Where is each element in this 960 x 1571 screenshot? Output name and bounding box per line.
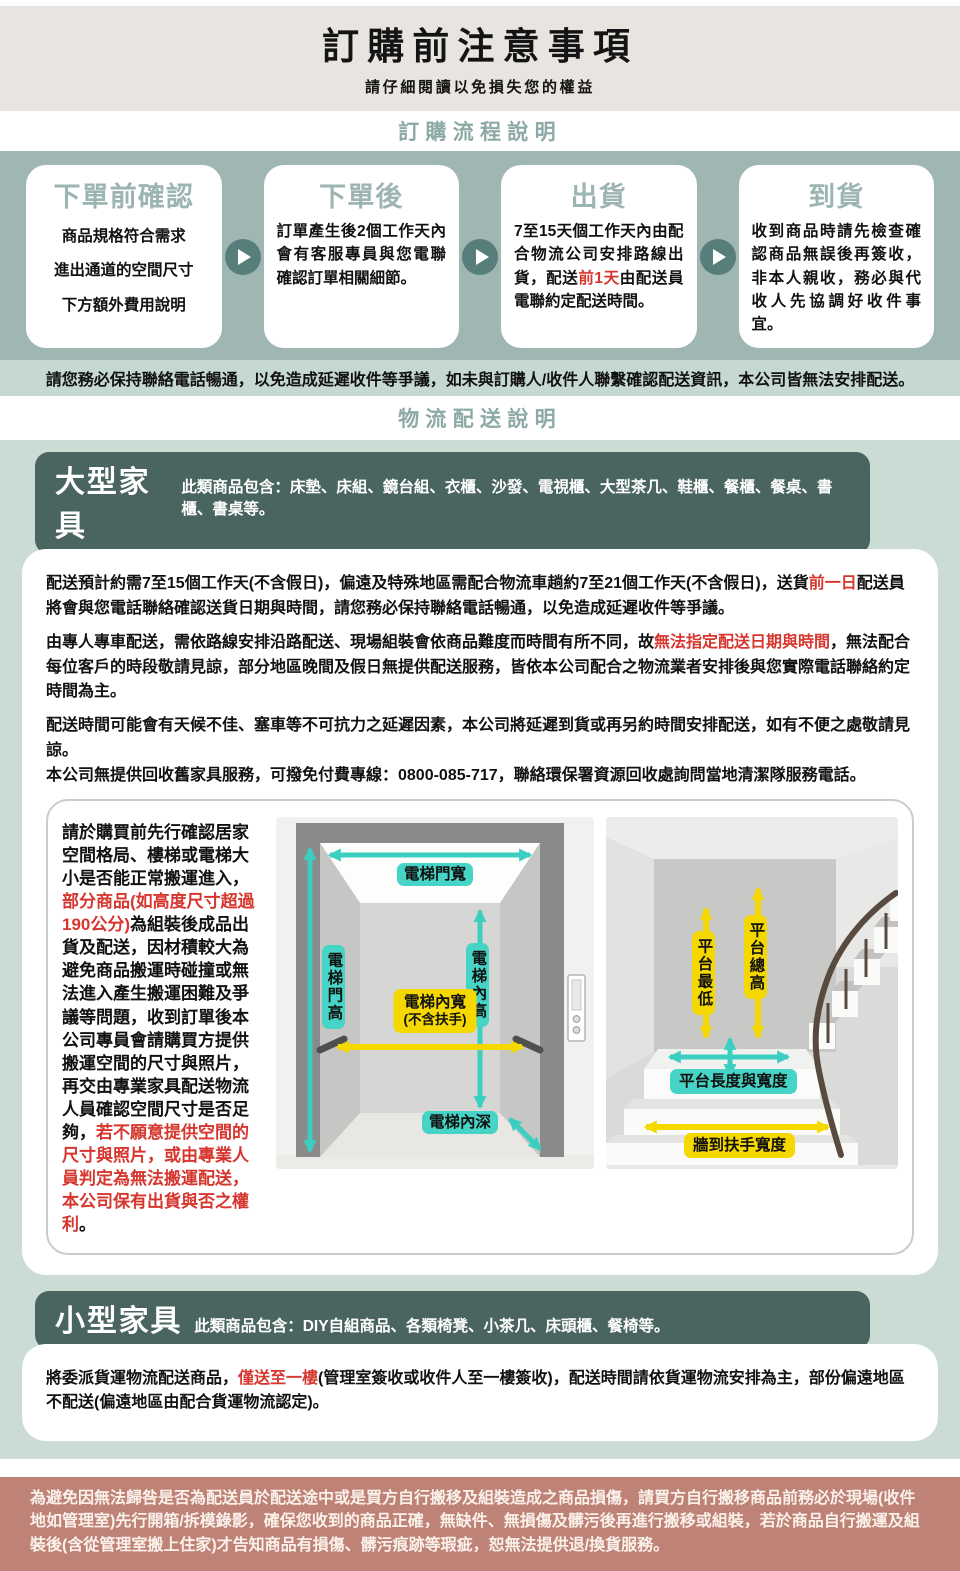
step-title: 出貨	[514, 175, 684, 214]
step-title: 下單後	[277, 175, 447, 214]
logistics-heading-band: 物流配送說明	[0, 396, 960, 440]
arrow-right-icon	[462, 239, 498, 275]
stairs-platform-min-label: 平台最低	[692, 931, 715, 1015]
large-furniture-panel: 配送預計約需7至15個工作天(不含假日)，偏遠及特殊地區需配合物流車趟約7至21…	[22, 549, 938, 1274]
elevator-diagram: 電梯門寬 電梯門高 電梯內高 電梯內寬 (不含扶手) 電梯內深	[276, 817, 594, 1169]
step-body: 7至15天個工作天內由配合物流公司安排路線出貨，配送前1天由配送員電聯約定配送時…	[514, 220, 684, 313]
process-heading: 訂購流程說明	[398, 121, 562, 144]
process-heading-band: 訂購流程說明	[0, 111, 960, 151]
step-body: 訂單產生後2個工作天內會有客服專員與您電聯確認訂單相關細節。	[277, 220, 447, 290]
logistics-section: 大型家具 此類商品包含：床墊、床組、鏡台組、衣櫃、沙發、電視櫃、大型茶几、鞋櫃、…	[0, 440, 960, 1459]
elevator-door-height-label: 電梯門高	[322, 945, 345, 1029]
small-furniture-panel: 將委派貨運物流配送商品，僅送至一樓(管理室簽收或收件人至一樓簽收)，配送時間請依…	[22, 1344, 938, 1442]
elevator-inner-width-text: 電梯內寬	[404, 994, 466, 1011]
step-title: 下單前確認	[39, 175, 209, 214]
damage-disclaimer-footer: 為避免因無法歸咎是否為配送員於配送途中或是買方自行搬移及組裝造成之商品損傷，請買…	[0, 1477, 960, 1571]
stairs-diagram: 平台最低 平台總高 平台長度與寬度 牆到扶手寬度	[606, 817, 898, 1169]
step-card-before-order: 下單前確認 商品規格符合需求進出通道的空間尺寸下方額外費用說明	[26, 165, 222, 348]
stairs-wall-rail-label: 牆到扶手寬度	[684, 1133, 795, 1158]
phone-contact-notice: 請您務必保持聯絡電話暢通，以免造成延遲收件等爭議，如未與訂購人/收件人聯繫確認配…	[0, 360, 960, 396]
step-title: 到貨	[752, 175, 922, 214]
arrow-right-icon	[700, 239, 736, 275]
stairs-platform-size-label: 平台長度與寬度	[670, 1069, 797, 1094]
delivery-route-paragraph: 由專人專車配送，需依路線安排沿路配送、現場組裝會依商品難度而時間有所不同，故無法…	[46, 631, 914, 705]
step-body: 收到商品時請先檢查確認商品無誤後再簽收，非本人親收，務必與代收人先協調好收件事宜…	[752, 220, 922, 336]
delay-recycle-paragraph: 配送時間可能會有天候不佳、塞車等不可抗力之延遲因素，本公司將延遲到貨或再另約時間…	[46, 714, 914, 788]
step-card-shipping: 出貨 7至15天個工作天內由配合物流公司安排路線出貨，配送前1天由配送員電聯約定…	[501, 165, 697, 348]
delivery-time-paragraph: 配送預計約需7至15個工作天(不含假日)，偏遠及特殊地區需配合物流車趟約7至21…	[46, 572, 914, 622]
small-furniture-includes: 此類商品包含：DIY自組商品、各類椅凳、小茶几、床頭櫃、餐椅等。	[194, 1314, 669, 1336]
space-check-box: 請於購買前先行確認居家空間格局、樓梯或電梯大小是否能正常搬運進入，部分商品(如高…	[46, 799, 914, 1255]
small-furniture-title: 小型家具	[55, 1296, 182, 1340]
arrow-right-icon	[225, 239, 261, 275]
large-furniture-includes: 此類商品包含：床墊、床組、鏡台組、衣櫃、沙發、電視櫃、大型茶几、鞋櫃、餐櫃、餐桌…	[181, 475, 850, 519]
logistics-heading: 物流配送說明	[398, 408, 562, 431]
space-check-note: 請於購買前先行確認居家空間格局、樓梯或電梯大小是否能正常搬運進入，部分商品(如高…	[62, 817, 264, 1237]
elevator-inner-width-label: 電梯內寬 (不含扶手)	[394, 989, 477, 1033]
stairs-platform-total-label: 平台總高	[744, 915, 767, 999]
step-card-after-order: 下單後 訂單產生後2個工作天內會有客服專員與您電聯確認訂單相關細節。	[264, 165, 460, 348]
elevator-inner-depth-label: 電梯內深	[422, 1111, 498, 1134]
small-furniture-paragraph: 將委派貨運物流配送商品，僅送至一樓(管理室簽收或收件人至一樓簽收)，配送時間請依…	[46, 1367, 914, 1417]
large-furniture-title: 大型家具	[55, 457, 169, 545]
step-body: 商品規格符合需求進出通道的空間尺寸下方額外費用說明	[39, 225, 209, 317]
step-card-arrival: 到貨 收到商品時請先檢查確認商品無誤後再簽收，非本人親收，務必與代收人先協調好收…	[739, 165, 935, 348]
large-furniture-header: 大型家具 此類商品包含：床墊、床組、鏡台組、衣櫃、沙發、電視櫃、大型茶几、鞋櫃、…	[35, 452, 870, 554]
page-header: 訂購前注意事項 請仔細閱讀以免損失您的權益	[0, 6, 960, 111]
elevator-inner-width-subtext: (不含扶手)	[404, 1012, 467, 1029]
process-steps-section: 下單前確認 商品規格符合需求進出通道的空間尺寸下方額外費用說明 下單後 訂單產生…	[0, 151, 960, 360]
elevator-door-width-label: 電梯門寬	[397, 863, 473, 886]
small-furniture-header: 小型家具 此類商品包含：DIY自組商品、各類椅凳、小茶几、床頭櫃、餐椅等。	[35, 1291, 870, 1349]
page-title: 訂購前注意事項	[0, 16, 960, 70]
page-subtitle: 請仔細閱讀以免損失您的權益	[0, 76, 960, 97]
